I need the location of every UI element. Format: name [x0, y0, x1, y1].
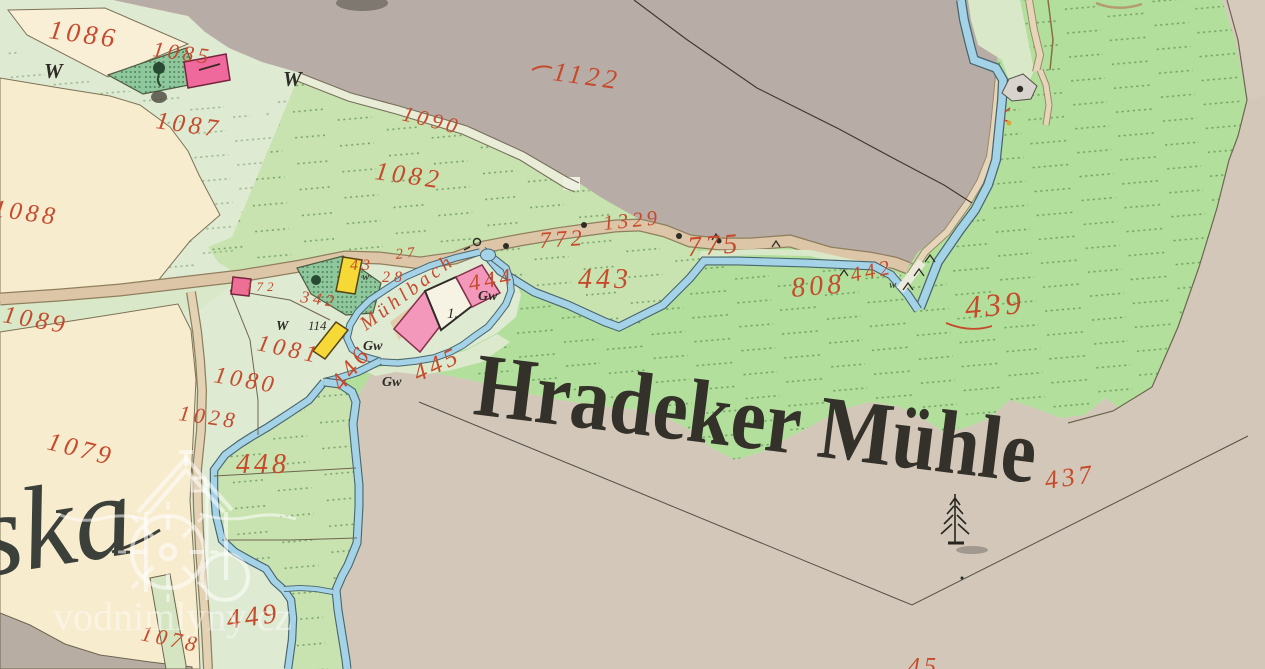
svg-text:808: 808 [790, 268, 846, 304]
svg-text:W: W [283, 67, 303, 91]
svg-text:vodnimlyny cz: vodnimlyny cz [53, 594, 292, 639]
svg-text:ska: ska [0, 449, 142, 603]
svg-text:w: w [362, 271, 370, 283]
svg-text:443: 443 [578, 264, 632, 295]
svg-text:w: w [889, 279, 897, 291]
svg-text:Gw: Gw [478, 289, 498, 304]
svg-text:27: 27 [395, 245, 420, 263]
svg-text:439: 439 [963, 284, 1026, 325]
svg-text:114: 114 [308, 318, 327, 333]
svg-text:Gw: Gw [382, 375, 402, 390]
svg-text:W: W [44, 59, 64, 83]
svg-text:1.: 1. [447, 306, 458, 322]
svg-text:775: 775 [686, 228, 742, 263]
svg-text:772: 772 [539, 225, 587, 253]
svg-text:45: 45 [908, 654, 940, 669]
svg-text:172: 172 [246, 279, 278, 294]
svg-text:W: W [276, 319, 290, 334]
svg-text:Gw: Gw [363, 339, 383, 354]
svg-text:448: 448 [236, 449, 290, 480]
